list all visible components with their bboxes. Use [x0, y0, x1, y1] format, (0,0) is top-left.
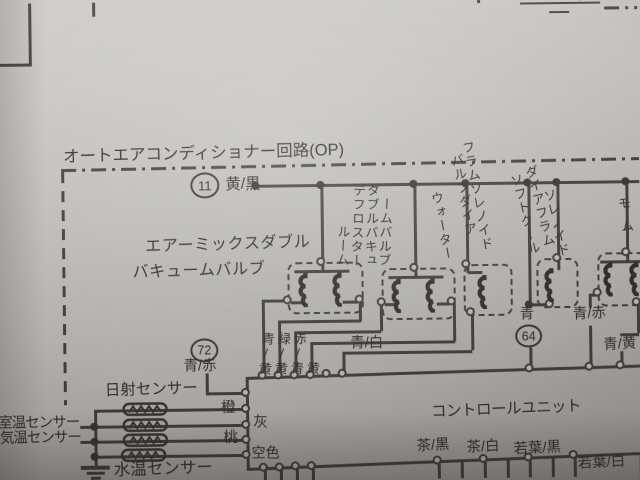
connector-pin: [433, 456, 442, 465]
wire-color-pink: 桃: [223, 431, 238, 446]
wire-color-ao-ki-right: 青/黄: [603, 337, 637, 354]
page-title: オートエアコンディショナー回路(OP): [63, 142, 345, 167]
connector-pin: [242, 450, 251, 459]
wire-color-ki: 黄: [305, 361, 320, 376]
connector-11-wire-color: 黄/黒: [225, 177, 261, 194]
thermistor-icon: [122, 433, 168, 448]
wire-color-midori-ki: 緑/黄: [273, 331, 291, 376]
wire-color-skyblue: 空色: [252, 446, 280, 461]
solenoid-coil-icon: [475, 274, 493, 310]
solenoid-coil-icon: [330, 272, 348, 308]
solenoid-coil-icon: [389, 278, 407, 314]
room-defroster-label-col4: ームバルブ: [376, 197, 392, 267]
wire-segment: [477, 0, 480, 3]
connector-pin: [241, 435, 250, 444]
bottom-wire-cha-shiro: 茶/白: [466, 439, 500, 456]
connector-pin: [322, 369, 331, 378]
bottom-wire-wakaba-shiro: 若葉/白: [577, 454, 625, 471]
junction-dot: [90, 438, 98, 446]
junction-dot: [552, 178, 560, 186]
air-mix-valve-label-line2: バキュームバルブ: [132, 261, 265, 282]
wire-segment: [206, 373, 209, 393]
wire-segment: [461, 460, 464, 478]
circuit-diagram: (55W× オートエアコンディショナー回路(OP) 11 黄/黒 エアーミックス…: [0, 0, 640, 480]
frame-left-border: [61, 172, 67, 405]
control-unit-label: コントロールユニット: [431, 399, 582, 421]
connector-pin: [241, 388, 250, 397]
connector-pin: [316, 257, 325, 266]
connector-pin: [569, 450, 578, 459]
connector-pin: [275, 462, 284, 471]
connector-pin: [615, 360, 624, 369]
connector-pin: [307, 461, 316, 470]
connector-pin: [241, 420, 250, 429]
connector-pin: [338, 369, 347, 378]
connector-pin: [621, 247, 630, 256]
connector-pin: [283, 295, 292, 304]
wire-segment: [413, 185, 417, 270]
wire-segment: [255, 180, 639, 188]
connector-pin: [585, 362, 594, 371]
junction-dot: [90, 423, 98, 431]
wiring-diagram-photo: (55W× オートエアコンディショナー回路(OP) 11 黄/黒 エアーミックス…: [0, 0, 640, 480]
wire-segment: [91, 477, 101, 480]
wire-segment: [0, 64, 32, 67]
connector-64-number: 64: [522, 329, 536, 343]
connector-pin: [593, 288, 602, 297]
wire-color-ao-aka-right: 青/赤: [573, 306, 607, 323]
water-valve-label-col1: ウォーター: [428, 190, 454, 261]
connector-pin: [466, 307, 475, 316]
connector-72-wire-color: 青/赤: [183, 359, 216, 375]
connector-pin: [461, 259, 470, 268]
connector-pin: [259, 463, 268, 472]
air-mix-valve-label-line1: エアーミックスダブル: [145, 234, 311, 256]
wire-color-ao-shiro: 青/白: [350, 336, 383, 352]
wire-segment: [549, 11, 569, 13]
junction-dot: [91, 453, 99, 461]
room-defroster-label-col1: ルーム: [334, 225, 349, 268]
thermistor-icon: [122, 418, 168, 433]
connector-11-badge: 11: [190, 172, 219, 198]
wire-segment: [28, 4, 32, 66]
wire-color-orange: 橙: [221, 401, 236, 416]
connector-pin: [377, 297, 386, 306]
connector-72-number: 72: [197, 343, 211, 357]
wire-segment: [87, 472, 105, 475]
wire-segment: [507, 458, 510, 478]
solenoid-coil-icon: [627, 261, 640, 297]
bottom-wire-wakaba-kuro: 若葉/黒: [513, 440, 561, 457]
wire-color-aka-ao: 赤/青: [289, 331, 307, 376]
junction-dot: [621, 177, 629, 185]
wire-segment: [92, 3, 95, 17]
solar-sensor-label: 日射センサー: [105, 381, 198, 400]
connector-pin: [447, 296, 456, 305]
connector-pin: [241, 404, 250, 413]
thermistor-icon: [122, 402, 168, 417]
wire-color-ao-ki: 青/黄: [257, 331, 275, 376]
top-right-dotdash: [604, 6, 637, 9]
wire-color-gray: 灰: [253, 416, 268, 431]
wire-segment: [320, 186, 324, 264]
water-temp-sensor-label: 水温センサー: [114, 459, 213, 479]
connector-pin: [632, 297, 640, 306]
solenoid-coil-icon: [423, 278, 441, 314]
right-edge-partial-label: モム: [616, 196, 635, 243]
connector-11-number: 11: [198, 178, 212, 193]
solenoid-coil-icon: [601, 261, 619, 297]
connector-pin: [355, 294, 364, 303]
wire-color-ao: 青: [520, 306, 534, 321]
outside-temp-sensor-label: 外気温センサー: [0, 431, 81, 447]
wire-layer: [0, 0, 637, 4]
solenoid-coil-icon: [296, 272, 314, 308]
junction-dot: [409, 180, 417, 188]
solenoid-coil-icon: [542, 267, 560, 303]
connector-64-badge: 64: [515, 324, 542, 347]
connector-pin: [525, 363, 534, 372]
connector-pin: [291, 461, 300, 470]
junction-dot: [316, 181, 324, 189]
connector-pin: [409, 263, 418, 272]
bottom-wire-cha-kuro: 茶/黒: [416, 438, 450, 455]
wire-segment: [95, 454, 249, 459]
wire-segment: [552, 456, 555, 477]
wire-segment: [278, 320, 361, 324]
